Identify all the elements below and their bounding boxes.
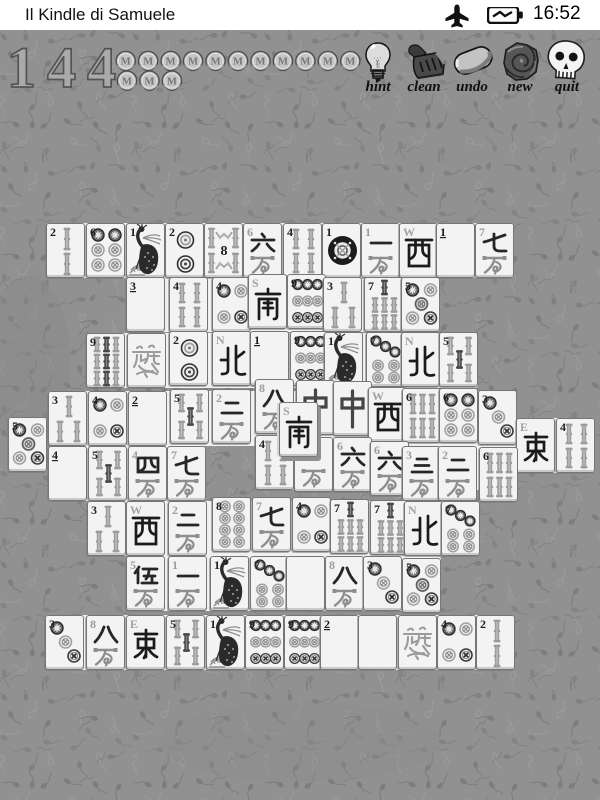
svg-text:N: N: [216, 333, 225, 347]
svg-text:7: 7: [370, 334, 376, 348]
svg-text:3: 3: [367, 558, 373, 572]
svg-text:7: 7: [479, 225, 485, 239]
svg-text:8: 8: [221, 244, 228, 259]
svg-text:9: 9: [90, 335, 96, 349]
svg-text:W: W: [372, 389, 384, 403]
svg-text:3: 3: [130, 279, 136, 293]
svg-text:6: 6: [406, 390, 412, 404]
svg-text:2: 2: [132, 393, 138, 407]
svg-text:M: M: [166, 57, 176, 68]
svg-text:6: 6: [483, 449, 489, 463]
svg-text:4: 4: [92, 393, 98, 407]
svg-text:144: 144: [7, 40, 127, 96]
svg-text:7: 7: [256, 499, 262, 513]
svg-text:5: 5: [170, 617, 176, 631]
svg-text:4: 4: [173, 279, 179, 293]
svg-text:M: M: [167, 76, 177, 87]
svg-text:M: M: [300, 57, 310, 68]
svg-text:9: 9: [249, 617, 255, 631]
svg-text:5: 5: [406, 560, 412, 574]
svg-text:1: 1: [326, 225, 332, 239]
svg-text:1: 1: [440, 225, 446, 239]
svg-text:6: 6: [247, 225, 253, 239]
svg-text:2: 2: [480, 617, 486, 631]
svg-text:7: 7: [254, 558, 260, 572]
svg-text:W: W: [403, 225, 415, 239]
svg-text:9: 9: [294, 333, 300, 347]
svg-text:8: 8: [329, 558, 335, 572]
svg-text:8: 8: [216, 499, 222, 513]
svg-text:4: 4: [216, 279, 222, 293]
svg-text:2: 2: [172, 503, 178, 517]
svg-text:5: 5: [174, 391, 180, 405]
svg-text:M: M: [278, 57, 288, 68]
svg-text:5: 5: [130, 558, 136, 572]
svg-text:4: 4: [52, 448, 58, 462]
svg-text:2: 2: [324, 617, 330, 631]
svg-text:3: 3: [52, 393, 58, 407]
svg-text:5: 5: [92, 448, 98, 462]
svg-text:3: 3: [406, 448, 412, 462]
svg-text:S: S: [252, 276, 259, 290]
svg-text:N: N: [408, 503, 417, 517]
svg-text:M: M: [233, 57, 243, 68]
svg-text:1: 1: [172, 558, 178, 572]
svg-text:4: 4: [287, 225, 293, 239]
svg-text:M: M: [121, 57, 131, 68]
svg-text:6: 6: [443, 390, 449, 404]
svg-text:7: 7: [368, 279, 374, 293]
svg-text:4: 4: [259, 437, 265, 451]
svg-text:4: 4: [441, 617, 447, 631]
svg-text:1: 1: [130, 225, 136, 239]
svg-text:2: 2: [50, 225, 56, 239]
svg-text:7: 7: [334, 501, 340, 515]
svg-text:M: M: [188, 57, 198, 68]
svg-text:1: 1: [214, 558, 220, 572]
svg-text:2: 2: [442, 448, 448, 462]
svg-text:3: 3: [482, 392, 488, 406]
svg-text:2: 2: [216, 391, 222, 405]
svg-text:M: M: [211, 57, 221, 68]
svg-text:6: 6: [374, 443, 380, 457]
svg-text:7: 7: [445, 503, 451, 517]
svg-text:5: 5: [443, 334, 449, 348]
svg-text:6: 6: [90, 225, 96, 239]
svg-text:1: 1: [210, 617, 216, 631]
svg-text:5: 5: [405, 279, 411, 293]
svg-text:1: 1: [254, 333, 260, 347]
svg-text:3: 3: [327, 279, 333, 293]
svg-text:1: 1: [365, 225, 371, 239]
svg-text:M: M: [144, 76, 154, 87]
svg-text:2: 2: [173, 333, 179, 347]
svg-text:5: 5: [12, 419, 18, 433]
svg-text:8: 8: [90, 617, 96, 631]
svg-text:M: M: [323, 57, 333, 68]
svg-text:S: S: [283, 404, 290, 418]
svg-text:3: 3: [91, 503, 97, 517]
svg-text:N: N: [405, 334, 414, 348]
svg-text:E: E: [520, 420, 528, 434]
svg-text:9: 9: [288, 617, 294, 631]
svg-text:M: M: [143, 57, 153, 68]
svg-text:3: 3: [49, 617, 55, 631]
svg-text:4: 4: [132, 448, 138, 462]
svg-text:4: 4: [560, 420, 566, 434]
svg-text:1: 1: [328, 334, 334, 348]
svg-text:2: 2: [169, 225, 175, 239]
svg-text:6: 6: [337, 439, 343, 453]
svg-text:9: 9: [291, 276, 297, 290]
svg-text:M: M: [255, 57, 265, 68]
svg-text:4: 4: [296, 499, 302, 513]
svg-text:M: M: [122, 76, 132, 87]
svg-text:7: 7: [374, 502, 380, 516]
svg-text:8: 8: [259, 381, 265, 395]
svg-text:7: 7: [171, 448, 177, 462]
svg-text:W: W: [130, 503, 142, 517]
svg-text:E: E: [130, 617, 138, 631]
